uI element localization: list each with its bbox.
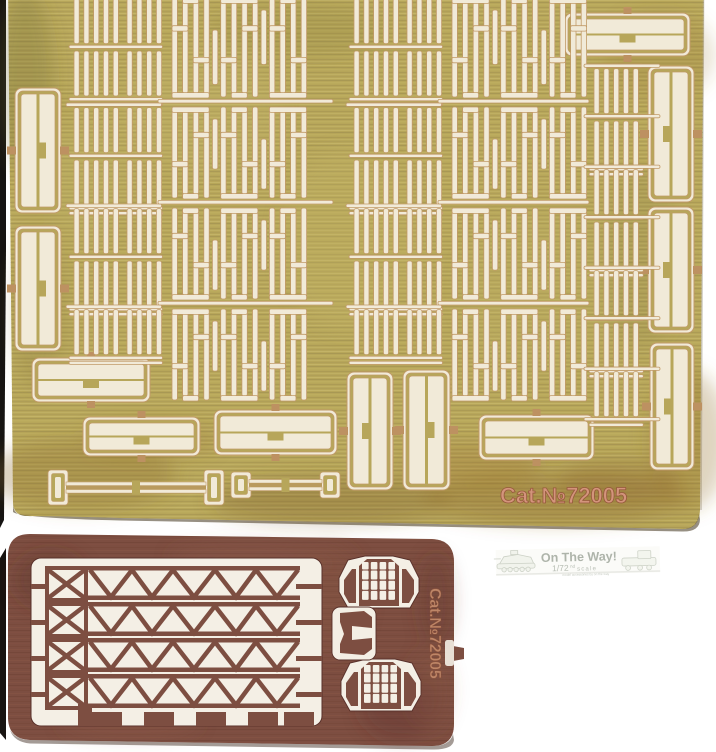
svg-text:nd: nd [570, 564, 576, 569]
svg-text:1/72: 1/72 [552, 563, 569, 573]
svg-text:Cat.№72005: Cat.№72005 [500, 483, 627, 508]
svg-text:Cat.№72005: Cat.№72005 [426, 588, 443, 679]
